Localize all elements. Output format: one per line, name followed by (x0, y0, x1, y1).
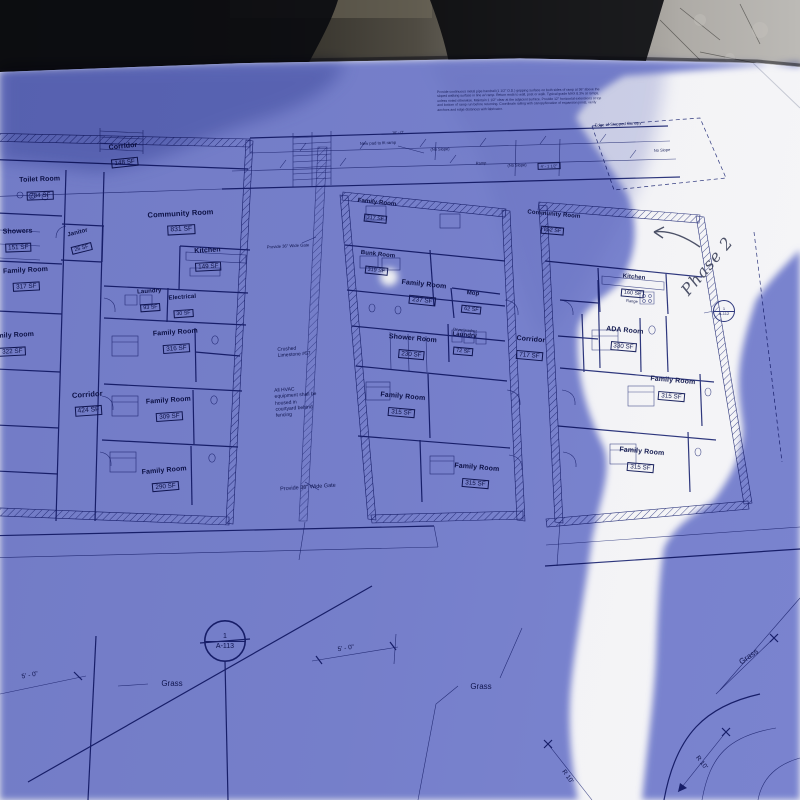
dim-5-0-left: 5' - 0" (21, 670, 39, 681)
room-label-family-317-mid: Family Room317 SF (355, 198, 396, 227)
note-gate-top: Provide 36" Wide Gate (267, 242, 310, 249)
room-label-corridor-424: Corridor424 SF (72, 390, 105, 418)
room-label-family-315-right-b: Family Room315 SF (617, 446, 664, 476)
radius-r10-right: R 10' (693, 755, 709, 772)
blueprint-paper: Corridor148 SF Toilet Room234 SF Janitor… (0, 0, 800, 800)
room-label-family-317-left: Family Room317 SF (3, 266, 49, 294)
room-label-janitor: Janitor26 SF (67, 228, 93, 257)
room-label-community-831: Community Room831 SF (147, 208, 214, 238)
note-dim-boxed: 4' - 1 1/2" (537, 162, 560, 170)
note-gate-bottom: Provide 36" Wide Gate (280, 483, 336, 494)
room-label-shower-room: Shower Room230 SF (387, 333, 437, 363)
room-label-bunk-room: Bunk Room319 SF (359, 250, 396, 278)
note-hvac: All HVAC equipment shall be housed in co… (274, 385, 318, 419)
room-label-family-315-mid-a: Family Room315 SF (378, 391, 425, 421)
note-dim-16: 16' - 0" (392, 130, 404, 135)
handwritten-phase-2: Phase 2 (677, 233, 737, 299)
plan-labels: Corridor148 SF Toilet Room234 SF Janitor… (0, 0, 800, 800)
note-limestone: Crushed Limestone #57 (277, 345, 311, 360)
room-label-family-316: Family Room316 SF (153, 328, 200, 357)
photo-of-floor-plan: Corridor148 SF Toilet Room234 SF Janitor… (0, 0, 800, 800)
room-label-family-309: Family Room309 SF (146, 396, 193, 425)
room-label-family-290: Family Room290 SF (141, 465, 188, 495)
dim-5-0-mid: 5' - 0" (337, 644, 355, 655)
detail-callout-a113: 1 A-113 (204, 620, 246, 662)
note-new-pad: New pad to fit ramp (360, 140, 396, 147)
room-label-mop: Mop62 SF (461, 290, 484, 317)
note-canopy-edge: Edge of Stepped Canopy (594, 120, 641, 128)
room-label-family-322: Family Room322 SF (0, 331, 35, 359)
room-label-showers: Showers151 SF (3, 228, 34, 255)
room-label-community-852: Community Room852 SF (525, 209, 580, 238)
room-label-electrical: Electrical30 SF (168, 294, 197, 320)
room-label-kitchen-149: Kitchen149 SF (194, 246, 222, 273)
note-no-slope-canopy: No Slope (654, 147, 671, 153)
grass-label-middle: Grass (470, 682, 491, 692)
room-label-ada-room: ADA Room330 SF (604, 326, 644, 355)
room-label-corridor-148: Corridor148 SF (108, 142, 139, 171)
room-label-family-315-right-a: Family Room315 SF (648, 375, 695, 405)
callout-113-sheet: A-113 (205, 641, 245, 650)
room-label-laundry-72: Dryer/washerLaundry72 SF (451, 327, 478, 358)
radius-r10-left: R 10' (559, 769, 574, 786)
room-label-laundry-93: Laundry93 SF (137, 288, 163, 314)
general-note-paragraph: Provide continuous metal pipe handrail (… (437, 87, 607, 112)
room-label-toilet-room: Toilet Room234 SF (19, 175, 61, 202)
room-label-family-315-mid-b: Family Room315 SF (452, 462, 499, 492)
grass-label-left: Grass (161, 679, 182, 689)
detail-callout-a112: 1 A-112 (713, 300, 735, 322)
callout-113-number: 1 (223, 633, 227, 641)
room-label-family-237: Family Room237 SF (399, 279, 447, 309)
note-no-slope-b: (No Slope) (507, 162, 526, 168)
callout-112-sheet: A-112 (714, 311, 734, 316)
note-ramp: Ramp (476, 160, 487, 165)
note-no-slope-a: (No Slope) (430, 146, 449, 152)
room-label-corridor-717: Corridor717 SF (515, 335, 546, 363)
room-label-kitchen-160: Kitchen160 SFRange (620, 273, 646, 304)
grass-label-right: Grass (737, 647, 760, 667)
